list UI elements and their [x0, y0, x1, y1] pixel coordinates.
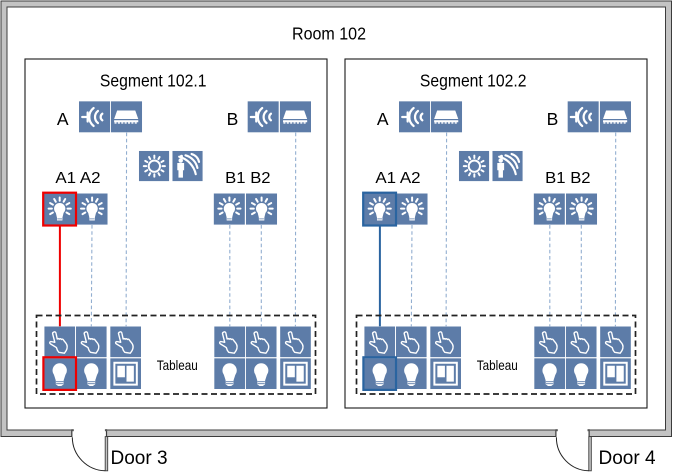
- svg-text:Tableau: Tableau: [477, 357, 518, 373]
- svg-text:Door 3: Door 3: [111, 448, 168, 469]
- svg-text:Door 4: Door 4: [599, 448, 656, 469]
- svg-text:B1 B2: B1 B2: [545, 170, 590, 187]
- svg-text:A: A: [377, 109, 389, 129]
- svg-text:Room 102: Room 102: [292, 24, 366, 44]
- svg-text:A1 A2: A1 A2: [55, 170, 100, 187]
- svg-text:A1 A2: A1 A2: [375, 170, 420, 187]
- svg-text:A: A: [57, 109, 69, 129]
- svg-text:Segment 102.2: Segment 102.2: [420, 70, 527, 90]
- svg-text:B: B: [547, 109, 559, 129]
- svg-text:Tableau: Tableau: [157, 357, 198, 373]
- svg-text:Segment 102.1: Segment 102.1: [100, 70, 207, 90]
- svg-text:B1 B2: B1 B2: [225, 170, 270, 187]
- svg-text:B: B: [227, 109, 239, 129]
